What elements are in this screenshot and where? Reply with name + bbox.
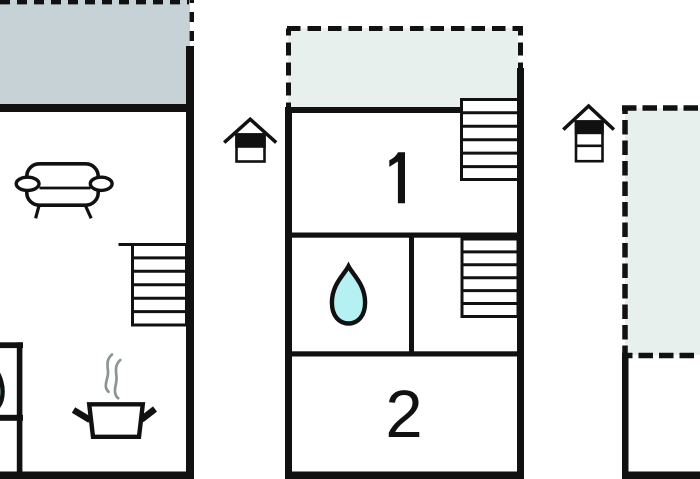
svg-text:2: 2 [385, 377, 422, 452]
